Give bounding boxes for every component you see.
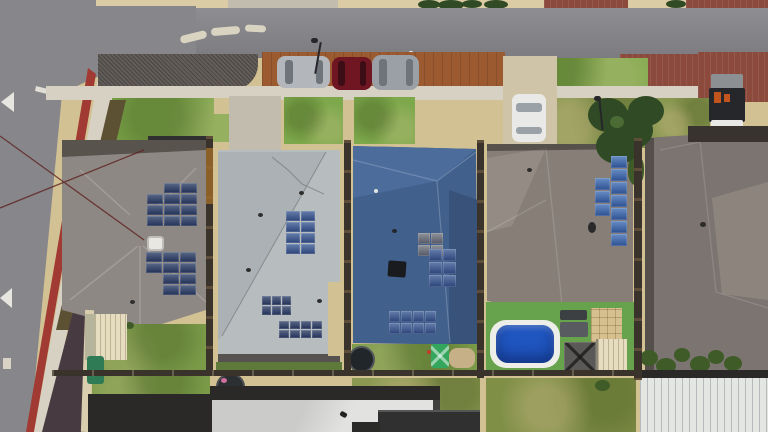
trailer-gear-orange	[724, 94, 730, 102]
solar-panel	[181, 183, 197, 193]
solar-panel	[163, 263, 179, 273]
trailer-gear-orange	[714, 92, 721, 103]
gazebo-roof	[564, 342, 596, 372]
solar-panel	[181, 194, 197, 204]
solar-panel	[611, 182, 627, 194]
solar-array	[146, 252, 197, 296]
solar-panel	[290, 321, 300, 329]
roof-vent-white	[374, 189, 378, 193]
driveway-car-white	[512, 94, 546, 142]
solar-panel	[611, 169, 627, 181]
street-light-head	[311, 38, 318, 43]
solar-array	[147, 183, 198, 227]
solar-panel	[389, 323, 400, 334]
boundary-fence	[477, 140, 484, 378]
hedge-bush	[708, 350, 724, 364]
hedge-bush	[674, 348, 690, 362]
sand-gap	[328, 282, 345, 356]
shadow-band	[88, 394, 212, 432]
solar-panel	[286, 244, 300, 254]
fence-rust-streak	[206, 148, 213, 204]
boundary-fence	[344, 140, 351, 376]
solar-panel	[290, 330, 300, 338]
car-windshield	[516, 103, 542, 112]
solar-panel	[413, 311, 424, 322]
solar-panel	[282, 306, 291, 315]
roof-vent	[258, 213, 263, 217]
toy-red	[427, 350, 431, 354]
solar-panel	[147, 194, 163, 204]
lawn-below-house4	[486, 378, 636, 432]
aerial-photo-canvas: Top-down aerial drone photo of a suburba…	[0, 0, 768, 432]
solar-panel	[147, 216, 163, 226]
dark-roof-bottom	[378, 410, 480, 432]
solar-panel	[595, 178, 610, 190]
solar-array	[262, 296, 292, 316]
hedge-bush	[724, 356, 742, 371]
roof-vent	[246, 268, 251, 272]
solar-panel	[301, 233, 315, 243]
roof-object-dark	[588, 222, 596, 233]
solar-panel	[429, 275, 442, 287]
boundary-fence	[206, 136, 213, 376]
swimming-pool	[496, 325, 554, 363]
solar-panel	[282, 296, 291, 305]
solar-panel	[147, 205, 163, 215]
solar-array	[286, 211, 316, 255]
solar-panel	[286, 211, 300, 221]
dark-roof-bottom	[352, 422, 380, 432]
solar-panel	[389, 311, 400, 322]
solar-panel	[312, 330, 322, 338]
shed-roof-edge	[85, 314, 95, 360]
outdoor-furniture	[560, 322, 588, 337]
solar-panel	[164, 194, 180, 204]
solar-panel	[163, 274, 179, 284]
solar-panel	[164, 183, 180, 193]
solar-panel	[181, 205, 197, 215]
solar-panel	[429, 262, 442, 274]
dirt-patch	[449, 348, 475, 368]
solar-panel	[262, 296, 271, 305]
solar-panel	[164, 216, 180, 226]
solar-panel	[312, 321, 322, 329]
car-rear-glass	[516, 127, 542, 134]
solar-panel	[425, 311, 436, 322]
solar-panel	[262, 306, 271, 315]
solar-panel	[163, 252, 179, 262]
solar-panel	[181, 216, 197, 226]
roof-vent	[317, 299, 322, 303]
solar-panel	[429, 249, 442, 261]
solar-panel	[301, 321, 311, 329]
solar-panel	[279, 330, 289, 338]
solar-panel	[163, 285, 179, 295]
solar-panel	[272, 306, 281, 315]
car-rear-glass	[360, 61, 366, 86]
solar-panel	[401, 323, 412, 334]
solar-panel	[418, 233, 430, 244]
parked-suv-grey	[372, 55, 419, 90]
solar-panel	[164, 205, 180, 215]
solar-panel	[431, 233, 443, 244]
car-windshield	[285, 60, 293, 84]
solar-panel	[443, 275, 456, 287]
roof-vent	[700, 222, 706, 227]
car-windshield	[338, 61, 345, 86]
solar-array	[279, 321, 323, 339]
solar-panel	[443, 262, 456, 274]
solar-array	[389, 311, 437, 335]
solar-panel	[301, 222, 315, 232]
garden-shed	[596, 339, 627, 371]
solar-array	[429, 249, 457, 288]
evap-cooler	[387, 260, 406, 277]
street-sign	[3, 358, 11, 369]
solar-panel	[611, 208, 627, 220]
parked-car-red	[332, 57, 372, 90]
roof-vent	[392, 229, 397, 233]
solar-array	[611, 156, 628, 247]
trampoline	[348, 346, 375, 373]
solar-panel	[595, 204, 610, 216]
solar-panel	[611, 221, 627, 233]
solar-panel	[279, 321, 289, 329]
roof-vent	[130, 300, 135, 304]
solar-panel	[180, 263, 196, 273]
house5-eave-shade	[645, 138, 654, 372]
solar-panel	[180, 274, 196, 284]
roof-vent	[299, 191, 304, 195]
solar-panel	[595, 191, 610, 203]
tree-highlight	[610, 116, 624, 128]
street-tree	[628, 96, 664, 126]
boundary-fence	[634, 138, 642, 380]
street-light-head	[594, 96, 601, 101]
solar-panel	[443, 249, 456, 261]
solar-array	[595, 178, 611, 217]
paved-square	[591, 308, 622, 342]
solar-panel	[180, 285, 196, 295]
solar-panel	[611, 156, 627, 168]
solar-panel	[301, 330, 311, 338]
outdoor-furniture	[560, 310, 587, 320]
house2-eave-shade	[218, 354, 340, 362]
toy-pink	[221, 378, 227, 383]
rear-fence-line	[52, 370, 642, 376]
solar-panel	[401, 311, 412, 322]
corrugated-patio-roof	[640, 378, 768, 432]
solar-panel	[301, 211, 315, 221]
solar-panel	[611, 234, 627, 246]
solar-panel	[272, 296, 281, 305]
solar-panel	[425, 323, 436, 334]
solar-panel	[301, 244, 315, 254]
solar-panel	[413, 323, 424, 334]
car-rear-glass	[406, 59, 413, 86]
front-wall-dark	[688, 126, 768, 142]
roof-vent	[527, 168, 532, 172]
solar-panel	[146, 252, 162, 262]
roof-unit-white	[147, 236, 164, 251]
garden-shrub	[595, 380, 610, 391]
solar-panel	[286, 233, 300, 243]
cream-shed	[85, 314, 127, 360]
solar-panel	[180, 252, 196, 262]
car-windshield	[379, 59, 387, 86]
solar-panel	[611, 195, 627, 207]
solar-panel	[146, 263, 162, 273]
solar-panel	[286, 222, 300, 232]
parked-car-silver	[277, 56, 330, 88]
clothesline-green	[431, 344, 449, 368]
